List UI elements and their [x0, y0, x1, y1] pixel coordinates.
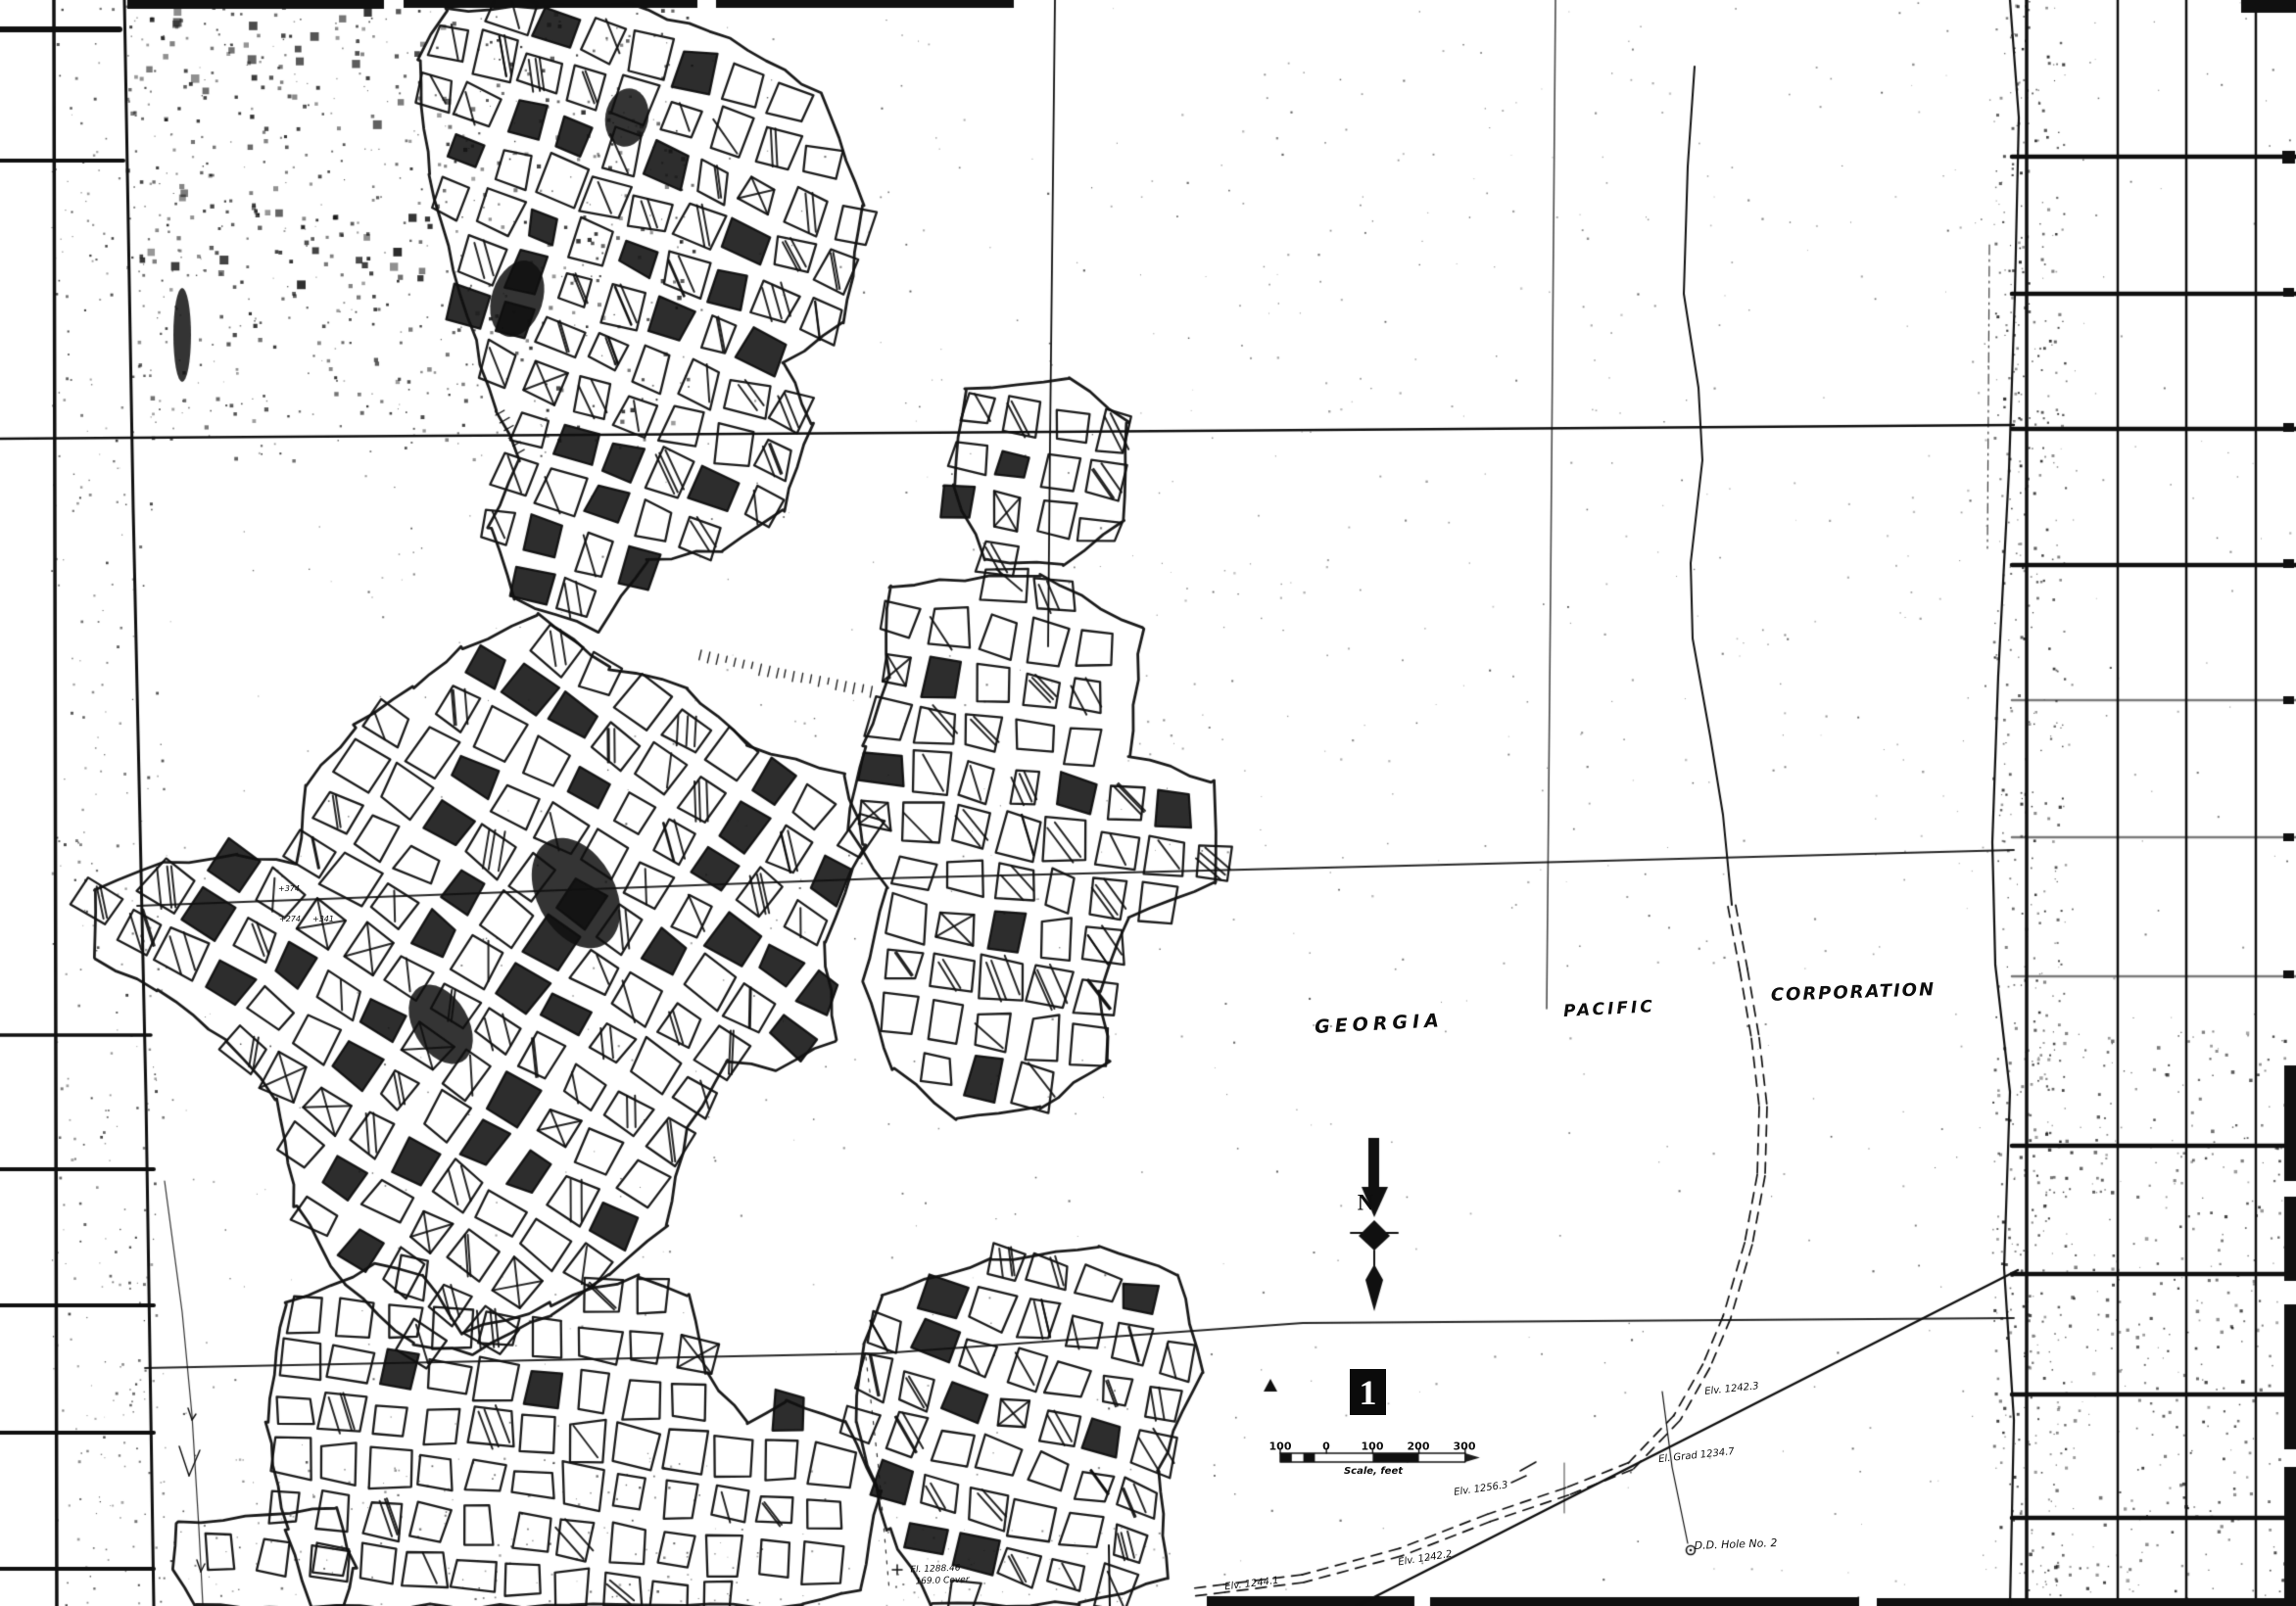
scale-tick-200: 200 [1408, 1441, 1430, 1452]
scale-tick-300: 300 [1454, 1441, 1476, 1452]
spot-elevation: +374 [278, 885, 300, 893]
spot-elevation: +274 [279, 916, 301, 923]
elevation-label-center: El. 1288.46 [910, 1565, 960, 1576]
dd-hole-label: D.D. Hole No. 2 [1694, 1537, 1777, 1551]
mine-map-scan-canvas [0, 0, 2296, 1606]
scale-tick-0: 0 [1322, 1441, 1330, 1452]
company-name-pacific: PACIFIC [1563, 999, 1656, 1020]
scale-caption: Scale, feet [1344, 1467, 1403, 1477]
map-sheet: GEORGIA PACIFIC CORPORATION N 1 100 0 10… [0, 0, 2296, 1606]
sheet-number: 1 [1360, 1372, 1377, 1413]
sheet-number-box: 1 [1350, 1369, 1386, 1415]
scale-tick-100-left: 100 [1269, 1441, 1292, 1452]
spot-elevation: +341 [312, 916, 334, 923]
cover-label: 169.0 Cover [915, 1577, 969, 1587]
north-arrow-letter: N [1358, 1192, 1374, 1214]
scale-tick-100: 100 [1362, 1441, 1384, 1452]
